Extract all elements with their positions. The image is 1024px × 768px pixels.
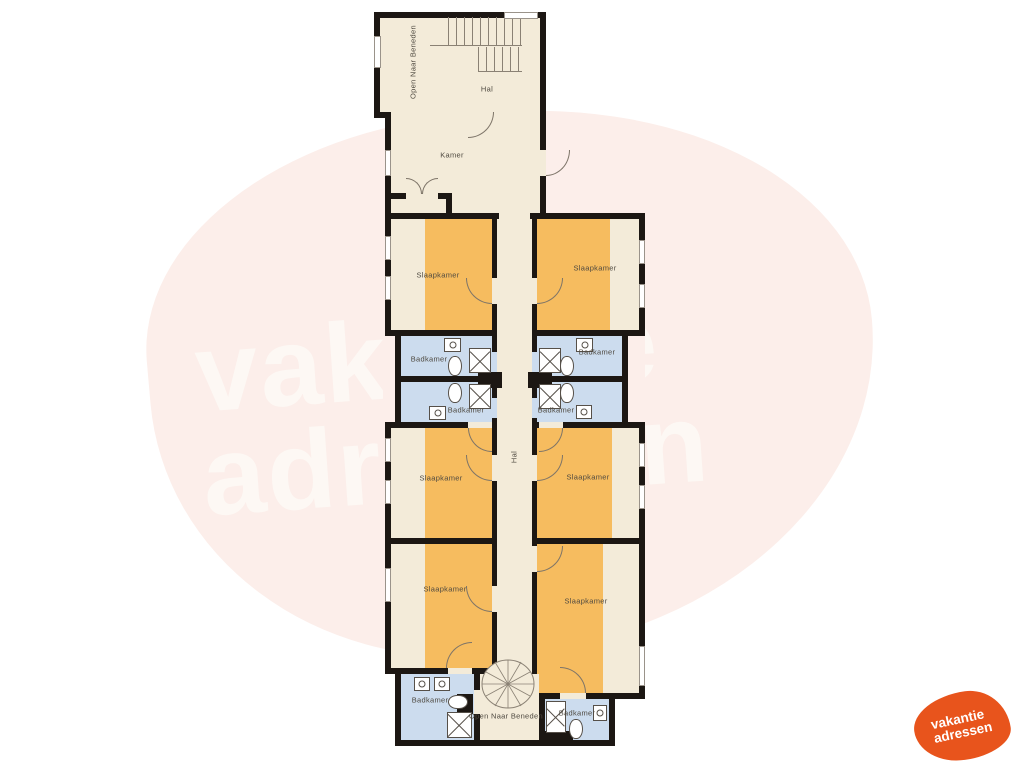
opening-kamer-corridor bbox=[499, 213, 530, 219]
sink-icon bbox=[429, 406, 446, 420]
window bbox=[639, 443, 645, 467]
room-label-slaapkamer-tr: Slaapkamer bbox=[573, 264, 616, 273]
room-label-kamer: Kamer bbox=[440, 151, 464, 160]
room-label-slaapkamer-mr: Slaapkamer bbox=[566, 473, 609, 482]
sink-icon bbox=[576, 405, 592, 419]
window bbox=[639, 485, 645, 509]
opening-slaapkamer-bl-bottom bbox=[448, 668, 472, 674]
room-label-slaapkamer-ml: Slaapkamer bbox=[419, 474, 462, 483]
spiral-stairs-icon bbox=[477, 658, 539, 714]
window bbox=[385, 150, 391, 176]
room-label-badkamer-lu: Badkamer bbox=[411, 355, 448, 364]
room-label-slaapkamer-tl: Slaapkamer bbox=[416, 271, 459, 280]
window bbox=[639, 284, 645, 308]
opening-badkamer-lu bbox=[492, 352, 497, 372]
floorplan: Open Naar Beneden Hal Kamer Slaapkamer S… bbox=[0, 0, 1024, 768]
window bbox=[374, 36, 381, 68]
opening-badkamer-rl bbox=[532, 398, 537, 418]
sink-icon bbox=[434, 677, 450, 691]
outside-notch-right bbox=[628, 336, 645, 422]
opening-slaapkamer-tl bbox=[492, 278, 497, 304]
room-label-hal-top: Hal bbox=[481, 85, 493, 94]
shower-icon bbox=[539, 348, 561, 373]
window bbox=[504, 12, 538, 19]
toilet-icon bbox=[560, 383, 574, 403]
toilet-icon bbox=[448, 383, 462, 403]
window bbox=[639, 646, 645, 686]
sink-icon bbox=[444, 338, 461, 352]
toilet-icon bbox=[448, 695, 468, 709]
toilet-icon bbox=[448, 356, 462, 376]
room-label-badkamer-rl: Badkamer bbox=[538, 406, 575, 415]
room-label-open-top: Open Naar Beneden bbox=[409, 25, 418, 99]
room-label-hal-corridor: Hal bbox=[510, 451, 519, 463]
window bbox=[385, 276, 391, 300]
toilet-icon bbox=[569, 719, 583, 739]
stairs-icon bbox=[478, 47, 522, 72]
opening-slaapkamer-bl bbox=[492, 586, 497, 612]
shower-icon bbox=[469, 348, 491, 373]
outside-notch-left bbox=[383, 336, 395, 422]
opening-slaapkamer-br-bottom bbox=[560, 693, 586, 699]
window bbox=[385, 438, 391, 462]
room-slaapkamer-tr-area bbox=[537, 219, 610, 330]
room-label-open-bottom: Open Naar Beneden bbox=[469, 712, 543, 721]
wall-closet-v bbox=[446, 193, 452, 219]
toilet-icon bbox=[560, 356, 574, 376]
window bbox=[385, 568, 391, 602]
opening-badkamer-ru bbox=[532, 352, 537, 372]
opening-badkamer-ll bbox=[492, 398, 497, 418]
sink-icon bbox=[414, 677, 430, 691]
stairs-icon bbox=[448, 17, 522, 46]
corridor-hal-floor bbox=[497, 219, 532, 674]
room-label-slaapkamer-br: Slaapkamer bbox=[564, 597, 607, 606]
window bbox=[385, 480, 391, 504]
window bbox=[385, 236, 391, 260]
stairs-landing-line bbox=[430, 45, 522, 46]
opening-slaapkamer-ml bbox=[492, 455, 497, 481]
room-label-slaapkamer-bl: Slaapkamer bbox=[423, 585, 466, 594]
door-icon bbox=[546, 150, 570, 176]
room-label-badkamer-bl: Badkamer bbox=[412, 696, 449, 705]
room-label-badkamer-ll: Badkamer bbox=[448, 406, 485, 415]
window bbox=[639, 240, 645, 264]
room-label-badkamer-br: Badkamer bbox=[559, 709, 596, 718]
room-label-badkamer-ru: Badkamer bbox=[579, 348, 616, 357]
